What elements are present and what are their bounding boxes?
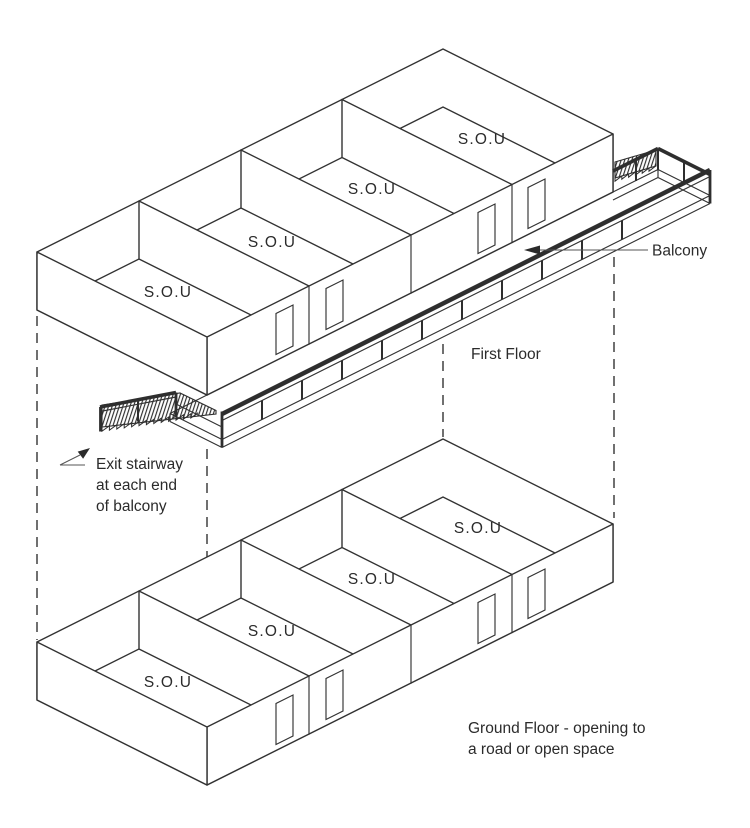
room-label: S.O.U xyxy=(454,520,502,537)
exit-note-leader-diagonal xyxy=(60,455,80,465)
exit-note-line2: at each end xyxy=(96,477,177,494)
exit-note-line1: Exit stairway xyxy=(96,456,183,473)
room-label: S.O.U xyxy=(348,181,396,198)
ground-floor-caption: Ground Floor - opening to a road or open… xyxy=(468,720,646,758)
first-floor-label: First Floor xyxy=(471,346,541,363)
balcony-label: Balcony xyxy=(652,243,707,260)
room-label: S.O.U xyxy=(348,571,396,588)
exit-stairway-note: Exit stairway at each end of balcony xyxy=(96,456,183,515)
ground-caption-line2: a road or open space xyxy=(468,741,615,758)
room-label: S.O.U xyxy=(144,674,192,691)
room-label: S.O.U xyxy=(248,234,296,251)
building-diagram-svg: S.O.U S.O.U S.O.U S.O.U xyxy=(0,0,750,828)
balcony-arrow-icon xyxy=(524,246,540,255)
exit-stairway-arrow-icon xyxy=(78,448,90,459)
stair-treads-hatch xyxy=(102,393,216,427)
room-label: S.O.U xyxy=(248,623,296,640)
isometric-diagram: S.O.U S.O.U S.O.U S.O.U xyxy=(0,0,750,828)
ground-caption-line1: Ground Floor - opening to xyxy=(468,720,646,737)
exit-stairway-left xyxy=(100,393,222,432)
exit-note-line3: of balcony xyxy=(96,498,167,515)
room-label: S.O.U xyxy=(144,284,192,301)
room-label: S.O.U xyxy=(458,131,506,148)
first-floor-building: S.O.U S.O.U S.O.U S.O.U xyxy=(37,49,613,395)
